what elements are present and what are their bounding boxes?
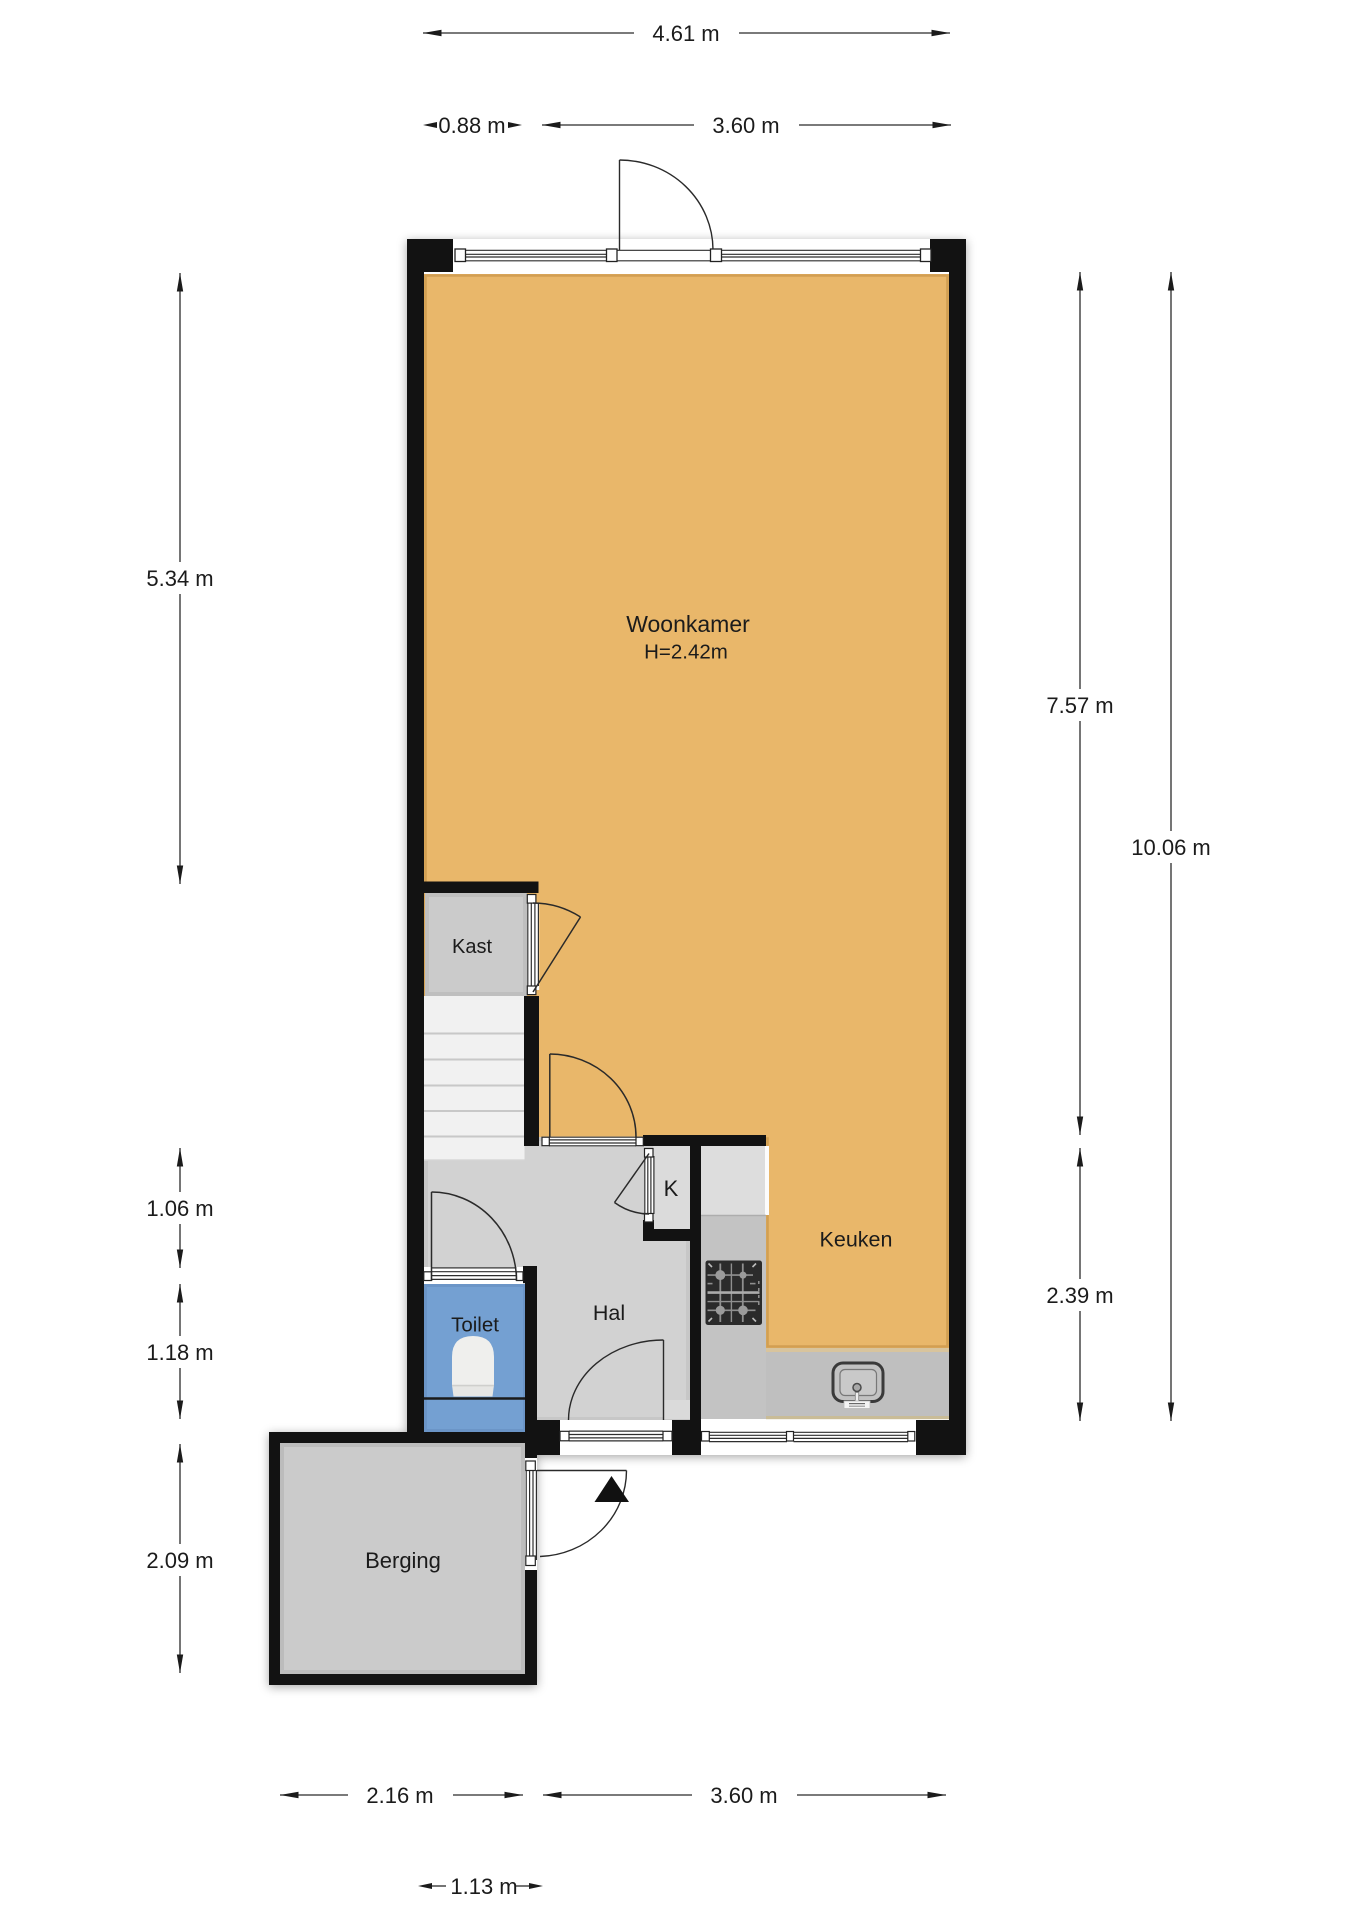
svg-text:Kast: Kast <box>452 936 492 958</box>
svg-text:Hal: Hal <box>593 1301 625 1325</box>
svg-text:4.61 m: 4.61 m <box>652 21 719 46</box>
svg-text:2.39 m: 2.39 m <box>1046 1283 1113 1308</box>
svg-text:3.60 m: 3.60 m <box>712 113 779 138</box>
svg-text:1.13 m: 1.13 m <box>450 1874 517 1899</box>
svg-text:7.57 m: 7.57 m <box>1046 693 1113 718</box>
svg-text:5.34 m: 5.34 m <box>146 566 213 591</box>
svg-text:K: K <box>664 1176 679 1201</box>
svg-text:Woonkamer: Woonkamer <box>626 611 750 637</box>
svg-text:Keuken: Keuken <box>820 1228 893 1252</box>
svg-text:1.18 m: 1.18 m <box>146 1340 213 1365</box>
svg-text:10.06 m: 10.06 m <box>1131 835 1211 860</box>
svg-text:2.16 m: 2.16 m <box>366 1783 433 1808</box>
svg-text:H=2.42m: H=2.42m <box>644 641 728 664</box>
svg-text:0.88 m: 0.88 m <box>438 113 505 138</box>
svg-text:1.06 m: 1.06 m <box>146 1196 213 1221</box>
svg-text:Berging: Berging <box>365 1548 441 1573</box>
svg-text:3.60 m: 3.60 m <box>710 1783 777 1808</box>
svg-text:Toilet: Toilet <box>451 1314 499 1337</box>
svg-text:2.09 m: 2.09 m <box>146 1548 213 1573</box>
